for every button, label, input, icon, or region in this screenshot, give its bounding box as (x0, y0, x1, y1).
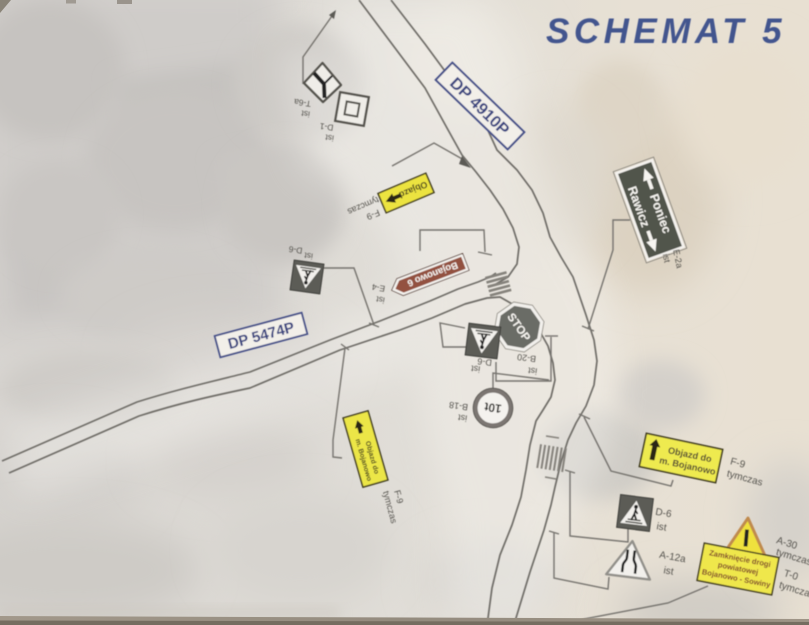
svg-text:ist: ist (527, 365, 538, 376)
svg-text:D-1: D-1 (319, 121, 334, 133)
svg-text:SCHEMAT 5: SCHEMAT 5 (546, 12, 786, 51)
svg-text:10t: 10t (483, 400, 502, 416)
svg-text:ist: ist (470, 363, 481, 374)
svg-text:D-6: D-6 (288, 244, 303, 256)
